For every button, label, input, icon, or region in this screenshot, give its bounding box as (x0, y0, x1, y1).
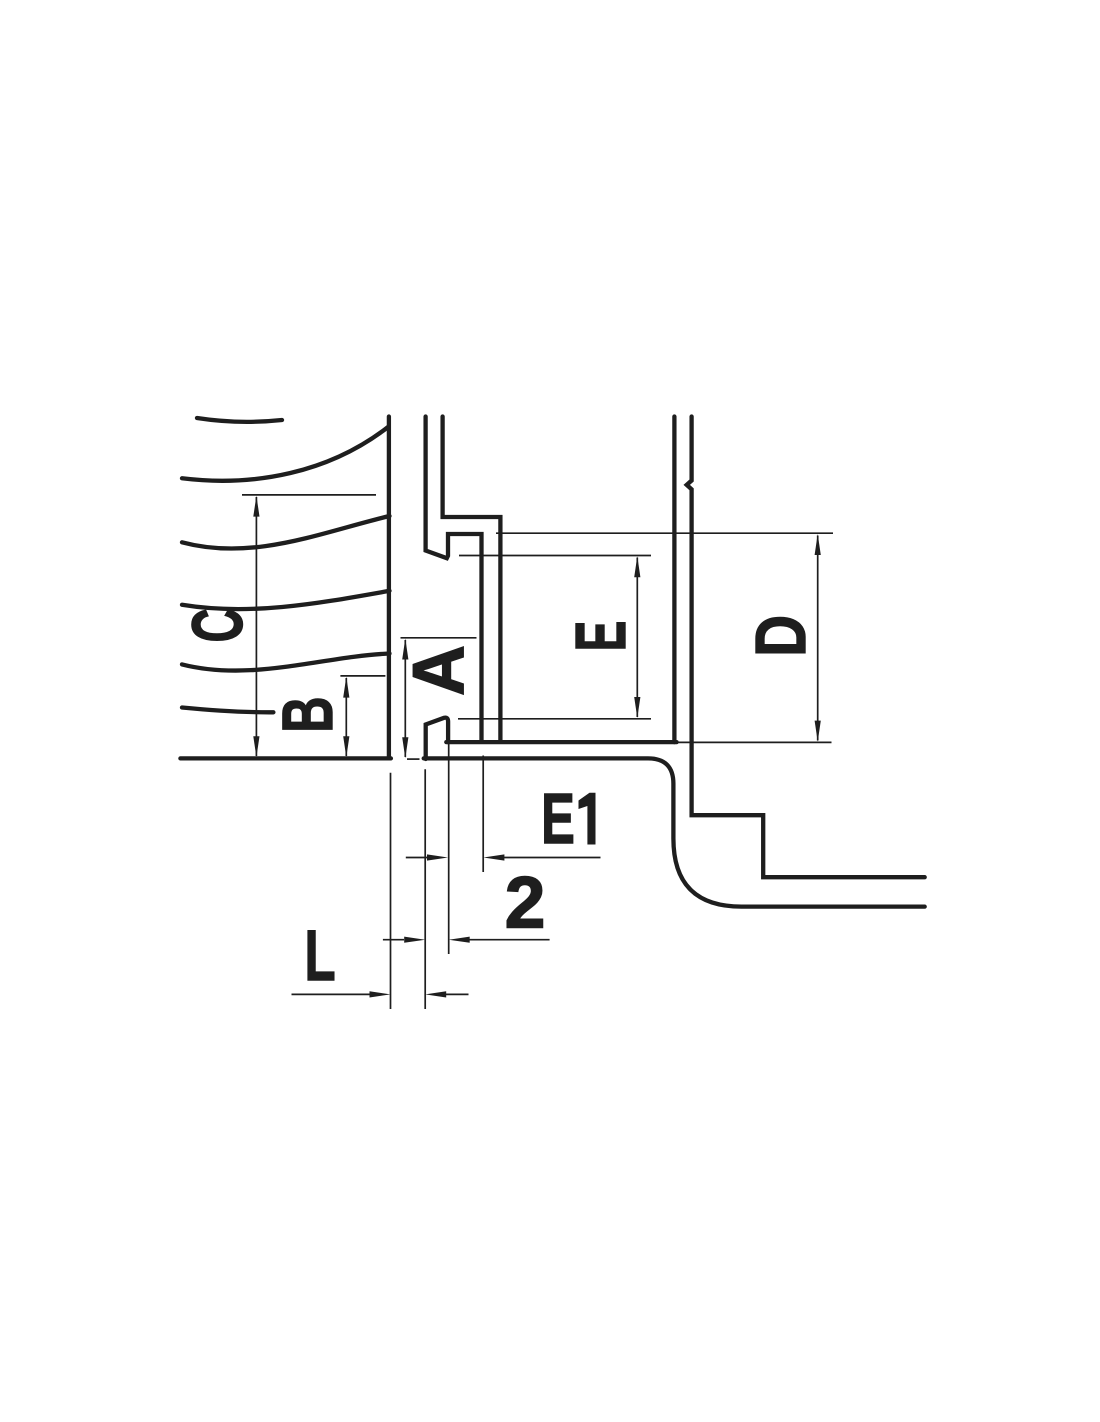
svg-text:2: 2 (505, 861, 546, 944)
svg-text:D: D (741, 615, 821, 657)
svg-text:C: C (177, 608, 257, 642)
svg-text:A: A (398, 645, 479, 696)
svg-text:E: E (561, 621, 641, 652)
svg-text:B: B (268, 696, 348, 732)
svg-text:L: L (304, 917, 335, 996)
svg-text:E: E (541, 780, 575, 859)
